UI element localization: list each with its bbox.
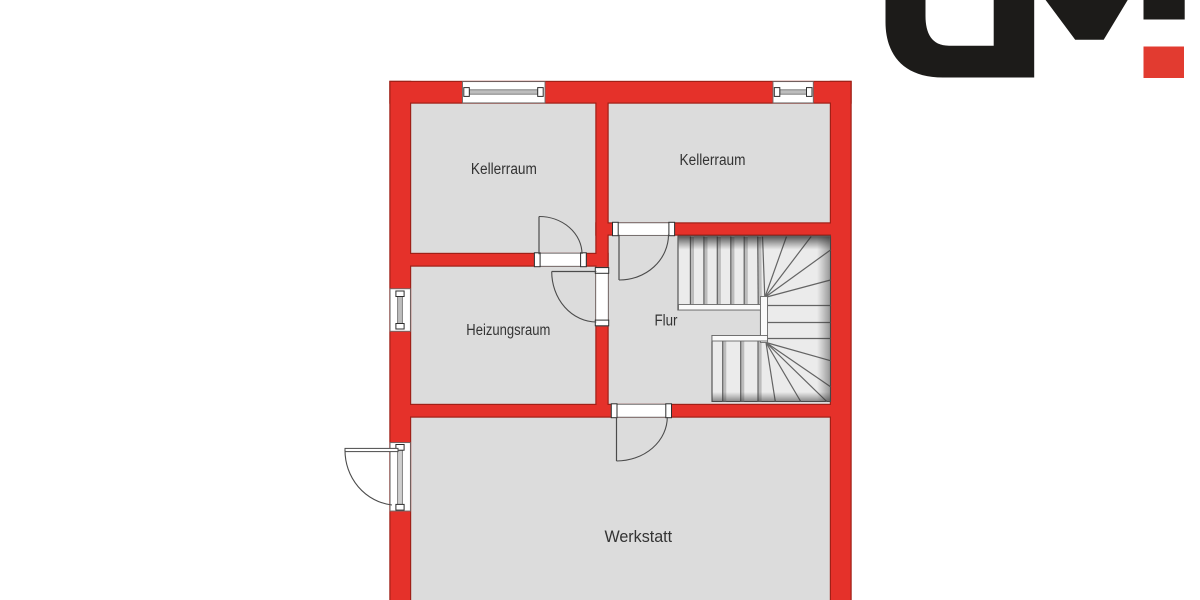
svg-text:Flur: Flur xyxy=(655,313,678,330)
svg-text:Heizungsraum: Heizungsraum xyxy=(466,322,550,339)
svg-text:Kellerraum: Kellerraum xyxy=(680,152,746,169)
svg-text:Kellerraum: Kellerraum xyxy=(471,161,537,178)
svg-text:Werkstatt: Werkstatt xyxy=(604,527,672,546)
